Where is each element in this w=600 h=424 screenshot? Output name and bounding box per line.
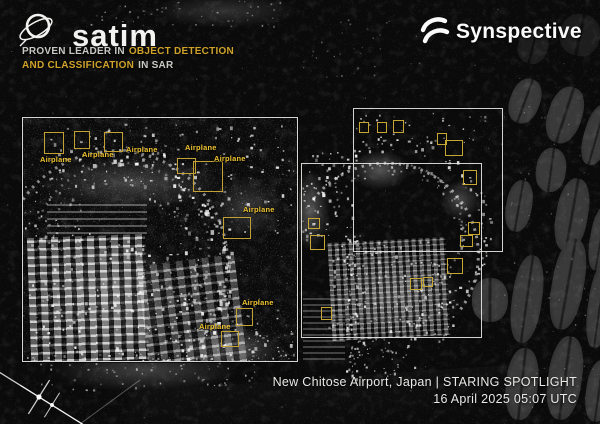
detection-box: [423, 277, 433, 287]
satim-logo-icon: [16, 10, 56, 50]
field-shape: [503, 74, 547, 127]
detection-box: [310, 235, 325, 250]
detection-label: Airplane: [199, 322, 231, 331]
field-shape: [533, 146, 569, 194]
sar-promo-image: AirplaneAirplaneAirplaneAirplaneAirplane…: [0, 0, 600, 424]
tagline-text: PROVEN LEADER IN: [22, 46, 125, 57]
corner-reflector-flare: [13, 373, 92, 424]
synspective-wordmark: Synspective: [456, 20, 582, 44]
detection-box: [410, 278, 422, 290]
image-caption: New Chitose Airport, Japan | STARING SPO…: [273, 374, 577, 408]
detection-box: [359, 122, 369, 133]
detection-box: [223, 217, 251, 239]
field-shape: [506, 253, 548, 344]
gate-row-texture: [47, 200, 147, 234]
detection-box: [44, 132, 64, 154]
field-shape: [544, 236, 591, 332]
tagline-highlight: OBJECT DETECTION: [129, 46, 234, 57]
detection-box: [447, 258, 463, 274]
field-shape: [584, 204, 600, 273]
caption-datetime: 16 April 2025 05:07 UTC: [273, 391, 577, 408]
detection-box: [74, 131, 90, 149]
field-shape: [550, 176, 594, 254]
tagline-highlight: AND CLASSIFICATION: [22, 60, 134, 71]
detection-zoom-panel: AirplaneAirplaneAirplaneAirplaneAirplane…: [22, 117, 298, 362]
satim-logo: satim: [16, 10, 196, 50]
detection-box: [460, 235, 473, 247]
detection-label: Airplane: [40, 155, 72, 164]
panel-glow: [33, 236, 183, 358]
field-shape: [582, 261, 600, 350]
terminal-blocks-texture: [27, 234, 149, 362]
detection-label: Airplane: [243, 205, 275, 214]
detection-box: [445, 140, 463, 156]
detection-box: [308, 218, 320, 229]
detection-box: [463, 170, 477, 185]
detection-box: [321, 307, 332, 320]
field-shape: [582, 358, 600, 423]
tagline-line1: PROVEN LEADER INOBJECT DETECTION: [22, 45, 234, 59]
detection-label: Airplane: [214, 154, 246, 163]
tagline-text: IN SAR: [138, 60, 173, 71]
detection-box: [221, 331, 239, 347]
caption-location: New Chitose Airport, Japan | STARING SPO…: [273, 374, 577, 391]
detection-box: [468, 222, 480, 235]
field-shape: [540, 82, 590, 148]
tagline-line2: AND CLASSIFICATIONIN SAR: [22, 59, 234, 73]
field-shape: [576, 102, 600, 169]
detection-label: Airplane: [126, 145, 158, 154]
synspective-logo-icon: [417, 13, 453, 53]
detection-label: Airplane: [185, 143, 217, 152]
detection-label: Airplane: [242, 298, 274, 307]
detection-box: [104, 132, 123, 152]
detection-box: [193, 161, 223, 192]
detection-box: [236, 308, 253, 326]
detection-box: [377, 122, 387, 133]
corner-reflector-flare: [0, 352, 94, 424]
tagline: PROVEN LEADER INOBJECT DETECTION AND CLA…: [22, 45, 234, 72]
field-shape: [502, 178, 537, 234]
detection-box: [393, 120, 404, 133]
